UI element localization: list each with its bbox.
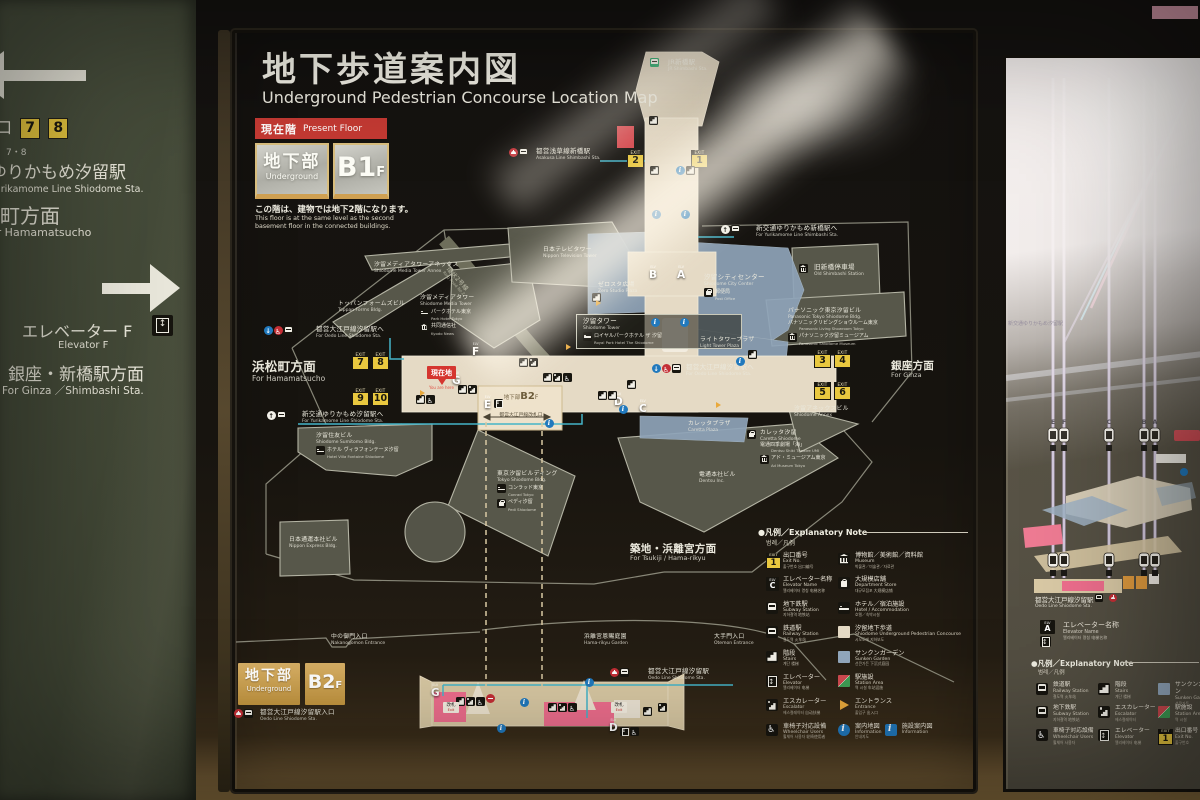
map-item: Information — [902, 730, 933, 736]
map-item: エレベーター — [783, 674, 820, 681]
legend-icon-cell: EXIT1 — [766, 552, 780, 569]
legend-icon-cell — [838, 698, 852, 711]
right-legend-header-sub: 범례／凡例 — [1038, 668, 1065, 676]
legend-item: エスカレーターEscalator에스컬레이터 自动扶梯 — [766, 698, 838, 722]
right-faint-label: 新交通ゆりかもめ汐留駅 — [1008, 320, 1063, 327]
legend-item: 車椅子対応設備Wheelchair Users휠체어 사용자 — [1036, 728, 1094, 751]
you-are-here-marker: 現在地 You are here — [427, 366, 456, 390]
exit-7-badge: 7 — [20, 118, 40, 139]
map-item: 施設案内図 — [902, 723, 933, 730]
map-item: 시오도메 지하보도 — [855, 638, 961, 643]
present-floor-jp: 現在階 — [261, 121, 297, 137]
yurikamome-jp: ゆりかもめ汐留駅 — [0, 158, 126, 183]
legend-item: 車椅子対応設備Wheelchair Users휠체어 사용자 轮椅使用者 — [766, 723, 838, 747]
stairs-icon — [1098, 683, 1110, 695]
legend-item: ELVCエレベーター名称Elevator Name엘리베이터 명칭 电梯名称 — [766, 576, 838, 600]
legend-item: サンクンガーデンSunken Garden선큰가든 — [1158, 682, 1200, 705]
map-item: 계단 楼梯 — [1115, 695, 1131, 700]
map-item: 案内地図 — [855, 723, 882, 730]
map-item: 호텔／숙박시설 — [855, 613, 909, 618]
legend-text: エレベーターElevator엘리베이터 电梯 — [783, 674, 820, 691]
map-item: 地下鉄駅 — [1053, 705, 1089, 712]
map-item: 출구번호 出口编号 — [783, 565, 813, 570]
map-item: 선큰가든 下沉式庭园 — [855, 662, 905, 667]
legend-text: 大規模店舗Department Store대규모점포 大规模店铺 — [855, 576, 896, 593]
train-icon — [766, 626, 778, 638]
svg-text:E: E — [1051, 419, 1055, 426]
legend-icon-cell — [1158, 682, 1172, 695]
legend-text-2: 施設案内図Information — [902, 723, 933, 736]
b2f-floor-boxes: 地下部 Underground B2F — [238, 663, 345, 705]
left-arrow-icon — [4, 70, 86, 81]
legend-icon-cell — [838, 674, 852, 687]
elev-icon — [1098, 729, 1110, 741]
legend-item: サンクンガーデンSunken Garden선큰가든 下沉式庭园 — [838, 650, 974, 674]
legend-item: エスカレーターEscalator에스컬레이터 — [1098, 705, 1156, 728]
map-item: エレベーター — [1115, 728, 1150, 735]
legend-item: エレベーターElevator엘리베이터 电梯 — [1098, 728, 1156, 751]
present-floor-en: Present Floor — [303, 124, 362, 134]
b2f-floor-name: 地下部 Underground — [238, 663, 300, 705]
map-item: 出口番号 — [1175, 728, 1198, 735]
map-item: 계단 楼梯 — [783, 662, 799, 667]
page-title-en: Underground Pedestrian Concourse Locatio… — [262, 88, 658, 107]
store-icon — [838, 577, 850, 589]
map-item: 박물관／미술관／자료관 — [855, 565, 923, 570]
map-item: ホテル／宿泊施設 — [855, 601, 909, 608]
entrance-icon — [840, 700, 849, 710]
legend-text: 鉄道駅Railway Station철도역 火车站 — [783, 625, 819, 642]
map-item: 鉄道駅 — [1053, 682, 1089, 689]
b2f-floor-en: Underground — [238, 685, 300, 693]
right-station-en: Oedo Line Shiodome Sta. — [1035, 604, 1094, 609]
b2chip-gate: 都営大江戸線改札口 — [481, 411, 561, 418]
elevator-icon — [1040, 636, 1051, 647]
legend-item: 汐留地下歩道Shiodome Underground Pedestrian Co… — [838, 625, 974, 649]
right-legend-col1: 鉄道駅Railway Station철도역 火车站地下鉄駅Subway Stat… — [1036, 682, 1094, 751]
map-item: 엘리베이터 电梯 — [783, 686, 820, 691]
legend-item: 駅施設Station Area역 시설 车站设施 — [838, 674, 974, 698]
legend-icon-cell — [1098, 728, 1112, 748]
b2chip-level: B2 — [520, 391, 535, 402]
present-floor-bar: 現在階 Present Floor — [255, 118, 387, 139]
sunken-garden-color-swatch — [838, 651, 850, 663]
floor-name-box: 地下部 Underground — [255, 143, 329, 199]
legend-icon-cell — [838, 723, 852, 743]
legend-text: 地下鉄駅Subway Station지하철역 地铁站 — [1053, 705, 1089, 722]
map-item: 안내지도 — [855, 735, 882, 740]
legend-item: ホテル／宿泊施設Hotel / Accommodation호텔／숙박시설 — [838, 601, 974, 625]
exit-label: 出入口 — [0, 118, 12, 137]
left-arrow-head-icon — [0, 51, 4, 99]
map-item: エスカレーター — [1115, 705, 1156, 712]
stairs-icon — [766, 651, 778, 663]
hamamatsucho-jp: 浜松町方面 — [0, 200, 60, 229]
legend-icon-cell — [838, 625, 852, 638]
legend-icon-cell — [1036, 705, 1050, 725]
legend-text: エスカレーターEscalator에스컬레이터 自动扶梯 — [783, 698, 826, 715]
floor-en: Underground — [257, 172, 327, 182]
legend-item: 鉄道駅Railway Station철도역 火车站 — [766, 625, 838, 649]
map-item: 지하철역 地铁站 — [1053, 718, 1089, 723]
map-item: 대규모점포 大规模店铺 — [855, 589, 896, 594]
svg-text:F: F — [1062, 419, 1066, 426]
legend-text: サンクンガーデンSunken Garden선큰가든 — [1175, 682, 1200, 706]
floor-level-box: B1F — [333, 143, 389, 199]
map-item: 에스컬레이터 自动扶梯 — [783, 711, 826, 716]
right-elv-name: エレベーター名称 Elevator Name 엘리베이터 명칭 电梯名称 — [1063, 620, 1119, 641]
elv-letter: A — [1040, 625, 1055, 633]
legend-header: ●凡例／Explanatory Note — [758, 527, 867, 538]
legend-text: エレベーターElevator엘리베이터 电梯 — [1115, 728, 1150, 745]
elevator-f-en: Elevator F — [58, 340, 108, 351]
legend-icon-cell — [1098, 705, 1112, 725]
legend-text: エスカレーターEscalator에스컬레이터 — [1115, 705, 1156, 722]
station-area-color-swatch — [1158, 706, 1170, 718]
legend-item: 鉄道駅Railway Station철도역 火车站 — [1036, 682, 1094, 705]
wheel-icon — [1036, 729, 1048, 741]
legend-item: 地下鉄駅Subway Station지하철역 地铁站 — [766, 601, 838, 625]
legend-icon-cell — [1036, 682, 1050, 702]
legend-text: 出口番号Exit No.출구번호 — [1175, 728, 1198, 745]
map-item: C — [766, 582, 779, 590]
legend-icon-cell — [766, 625, 780, 645]
sunken-garden-color-swatch — [1158, 683, 1170, 695]
map-item: 철도역 火车站 — [1053, 695, 1089, 700]
map-item: 휠체어 사용자 轮椅使用者 — [783, 735, 826, 740]
right-elv-chip: ELVA — [1040, 620, 1055, 653]
right-arrow-icon — [102, 283, 154, 294]
esc-icon — [766, 699, 778, 711]
legend-item: EXIT1出口番号Exit No.출구번호 出口编号 — [766, 552, 838, 576]
elevator-name-chip: ELVC — [766, 577, 779, 591]
legend-text: 駅施設Station Area역 시설 车站设施 — [855, 674, 883, 691]
subway-icon — [766, 602, 778, 614]
exit-8-badge: 8 — [48, 118, 68, 139]
map-item: 出口番号 — [783, 552, 813, 559]
legend-icon-cell — [1098, 682, 1112, 702]
legend-text: ホテル／宿泊施設Hotel / Accommodation호텔／숙박시설 — [855, 601, 909, 618]
legend-text: 車椅子対応設備Wheelchair Users휠체어 사용자 轮椅使用者 — [783, 723, 826, 740]
legend-text: サンクンガーデンSunken Garden선큰가든 下沉式庭园 — [855, 650, 905, 667]
legend-icon-cell-2 — [885, 723, 899, 743]
right-station-icons — [1094, 594, 1117, 613]
ginza-en: For Ginza ／Shimbashi Sta. — [2, 383, 144, 398]
right-legend-rule — [1124, 662, 1199, 663]
legend-icon-cell — [766, 723, 780, 743]
you-are-here-en: You are here — [427, 385, 456, 390]
legend-text: 階段Stairs계단 楼梯 — [1115, 682, 1131, 699]
legend-column-right: 博物館／美術館／資料館Museum박물관／미술관／자료관大規模店舗Departm… — [838, 552, 974, 747]
hotel-icon — [838, 602, 850, 614]
map-item: 駅施設 — [855, 674, 883, 681]
map-item: 車椅子対応設備 — [783, 723, 826, 730]
legend-icon-cell — [838, 552, 852, 572]
legend-icon-cell: ELVC — [766, 576, 780, 591]
legend-icon-cell — [838, 650, 852, 663]
infosq-icon — [885, 724, 897, 736]
elv-name-jp: エレベーター名称 — [1063, 620, 1119, 630]
legend-item: エレベーターElevator엘리베이터 电梯 — [766, 674, 838, 698]
esc-icon — [1098, 706, 1110, 718]
legend-icon-cell: EXIT1 — [1158, 728, 1172, 745]
right-arrow-head-icon — [150, 264, 180, 312]
elv-name-sub: 엘리베이터 명칭 电梯名称 — [1063, 635, 1119, 641]
legend-rule — [862, 532, 968, 533]
legend-item: 大規模店舗Department Store대규모점포 大规模店铺 — [838, 576, 974, 600]
legend-icon-cell — [766, 674, 780, 694]
floor-note-jp: この階は、建物では地下2階になります。 — [255, 203, 413, 215]
station-area-color-swatch — [838, 675, 850, 687]
elevator-icon — [152, 315, 173, 336]
panel-frame-edge — [218, 30, 230, 792]
ginza-jp: 銀座・新橋駅方面 — [8, 360, 144, 385]
toei-icon — [1109, 594, 1117, 602]
b2f-floor-jp: 地下部 — [238, 668, 300, 685]
info-icon — [838, 724, 850, 736]
floor-note-en: This floor is at the same level as the s… — [255, 215, 394, 230]
left-direction-sign: 出入口 7 8 7・8 ゆりかもめ汐留駅 Yurikamome Line Shi… — [0, 0, 196, 800]
legend-item: 地下鉄駅Subway Station지하철역 地铁站 — [1036, 705, 1094, 728]
right-station-jp: 都営大江戸線汐留駅 — [1035, 594, 1094, 604]
right-station-label: 都営大江戸線汐留駅 Oedo Line Shiodome Sta. — [1035, 594, 1094, 609]
map-item: 출입구 出入口 — [855, 711, 892, 716]
map-item: 역 시설 车站设施 — [855, 686, 883, 691]
legend-text: エレベーター名称Elevator Name엘리베이터 명칭 电梯名称 — [783, 576, 833, 593]
floor-note-en1: This floor is at the same level as the s… — [255, 215, 394, 222]
legend-text: 階段Stairs계단 楼梯 — [783, 650, 799, 667]
photo-stage: 出入口 7 8 7・8 ゆりかもめ汐留駅 Yurikamome Line Shi… — [0, 0, 1200, 800]
map-item: 지하철역 地铁站 — [783, 613, 819, 618]
map-item: 휠체어 사용자 — [1053, 741, 1094, 746]
right-legend-col3: サンクンガーデンSunken Garden선큰가든駅施設Station Area… — [1158, 682, 1200, 751]
exit-number-chip: EXIT1 — [1158, 729, 1173, 745]
legend-item: EXIT1出口番号Exit No.출구번호 — [1158, 728, 1200, 751]
legend-text: 車椅子対応設備Wheelchair Users휠체어 사용자 — [1053, 728, 1094, 745]
elevator-f-jp: エレベーター F — [22, 318, 132, 342]
map-item: 地下鉄駅 — [783, 601, 819, 608]
b2chip-suffix: F — [535, 394, 538, 401]
hamamatsucho-en: For Hamamatsucho — [0, 226, 91, 239]
train-icon — [1036, 683, 1048, 695]
map-item: 출구번호 — [1175, 741, 1198, 746]
legend-text: 駅施設Station Area역 시설 — [1175, 705, 1200, 722]
floor-note-en2: basement floor in the connected building… — [255, 223, 390, 230]
elevation-map-panel: EFCBA 新交通ゆりかもめ汐留駅 都営大江戸線汐留駅 Oedo Line Sh… — [1003, 55, 1200, 792]
svg-text:B: B — [1142, 419, 1147, 426]
map-item: 1 — [766, 558, 781, 569]
legend-column-left: EXIT1出口番号Exit No.출구번호 出口编号ELVCエレベーター名称El… — [766, 552, 838, 747]
map-item: 역 시설 — [1175, 718, 1200, 723]
legend-text: 汐留地下歩道Shiodome Underground Pedestrian Co… — [855, 625, 961, 642]
legend-icon-cell — [766, 698, 780, 718]
svg-text:A: A — [1153, 419, 1158, 426]
legend-header-sub: 범례／凡例 — [766, 538, 795, 547]
legend-icon-cell — [1036, 728, 1050, 748]
floor-level: B1 — [337, 152, 376, 183]
left-sign-exit-row: 出入口 7 8 — [0, 114, 68, 139]
map-item: 엘리베이터 电梯 — [1115, 741, 1150, 746]
elev-icon — [766, 675, 778, 687]
legend-text: 出口番号Exit No.출구번호 出口编号 — [783, 552, 813, 569]
b2chip-floor: 地下部 — [504, 395, 521, 401]
subway-icon — [1095, 594, 1103, 602]
subway-icon — [1036, 706, 1048, 718]
b2-gate-chip: 地下部B2F 都営大江戸線改札口 — [481, 391, 561, 418]
legend-item: 階段Stairs계단 楼梯 — [1098, 682, 1156, 705]
legend-text: 鉄道駅Railway Station철도역 火车站 — [1053, 682, 1089, 699]
legend-item: 博物館／美術館／資料館Museum박물관／미술관／자료관 — [838, 552, 974, 576]
legend-text: 地下鉄駅Subway Station지하철역 地铁站 — [783, 601, 819, 618]
exit-en: 7・8 — [6, 145, 26, 158]
map-item: サンクンガーデン — [1175, 682, 1200, 696]
legend-icon-cell — [838, 601, 852, 621]
legend-item: エントランスEntrance출입구 出入口 — [838, 698, 974, 722]
legend-icon-cell — [1158, 705, 1172, 718]
b2f-suffix: F — [335, 680, 342, 691]
legend-text: 博物館／美術館／資料館Museum박물관／미술관／자료관 — [855, 552, 923, 569]
map-item: 階段 — [1115, 682, 1131, 689]
pink-strip — [1152, 6, 1198, 19]
walkway-color-swatch — [838, 626, 850, 638]
b2f-floor-level: B2F — [305, 663, 345, 705]
you-are-here-jp: 現在地 — [427, 366, 456, 379]
map-item: 엘리베이터 명칭 电梯名称 — [783, 589, 833, 594]
legend-text: 案内地図Information안내지도 — [855, 723, 882, 740]
svg-text:C: C — [1107, 419, 1112, 426]
legend-icon-cell — [766, 601, 780, 621]
museum-icon — [838, 553, 850, 565]
legend-text: エントランスEntrance출입구 出入口 — [855, 698, 892, 715]
floor-suffix: F — [376, 165, 385, 180]
map-item: 철도역 火车站 — [783, 638, 819, 643]
wheel-icon — [766, 724, 778, 736]
legend-item: 駅施設Station Area역 시설 — [1158, 705, 1200, 728]
legend-item: 階段Stairs계단 楼梯 — [766, 650, 838, 674]
legend-icon-cell — [838, 576, 852, 596]
map-item: 車椅子対応設備 — [1053, 728, 1094, 735]
map-item: 階段 — [783, 650, 799, 657]
legend-item: 案内地図Information안내지도施設案内図Information — [838, 723, 974, 747]
page-title-jp: 地下歩道案内図 — [262, 42, 521, 91]
b2f-level: B2 — [308, 671, 336, 693]
map-item: 博物館／美術館／資料館 — [855, 552, 923, 559]
yurikamome-en: Yurikamome Line Shiodome Sta. — [0, 184, 144, 195]
map-item: 에스컬레이터 — [1115, 718, 1156, 723]
map-item: 駅施設 — [1175, 705, 1200, 712]
map-item: 1 — [1158, 734, 1173, 745]
right-legend-col2: 階段Stairs계단 楼梯エスカレーターEscalator에스컬레이터エレベータ… — [1098, 682, 1156, 751]
floor-jp: 地下部 — [257, 152, 327, 172]
exit-number-chip: EXIT1 — [766, 553, 781, 569]
map-item: サンクンガーデン — [855, 650, 905, 657]
legend-icon-cell — [766, 650, 780, 670]
